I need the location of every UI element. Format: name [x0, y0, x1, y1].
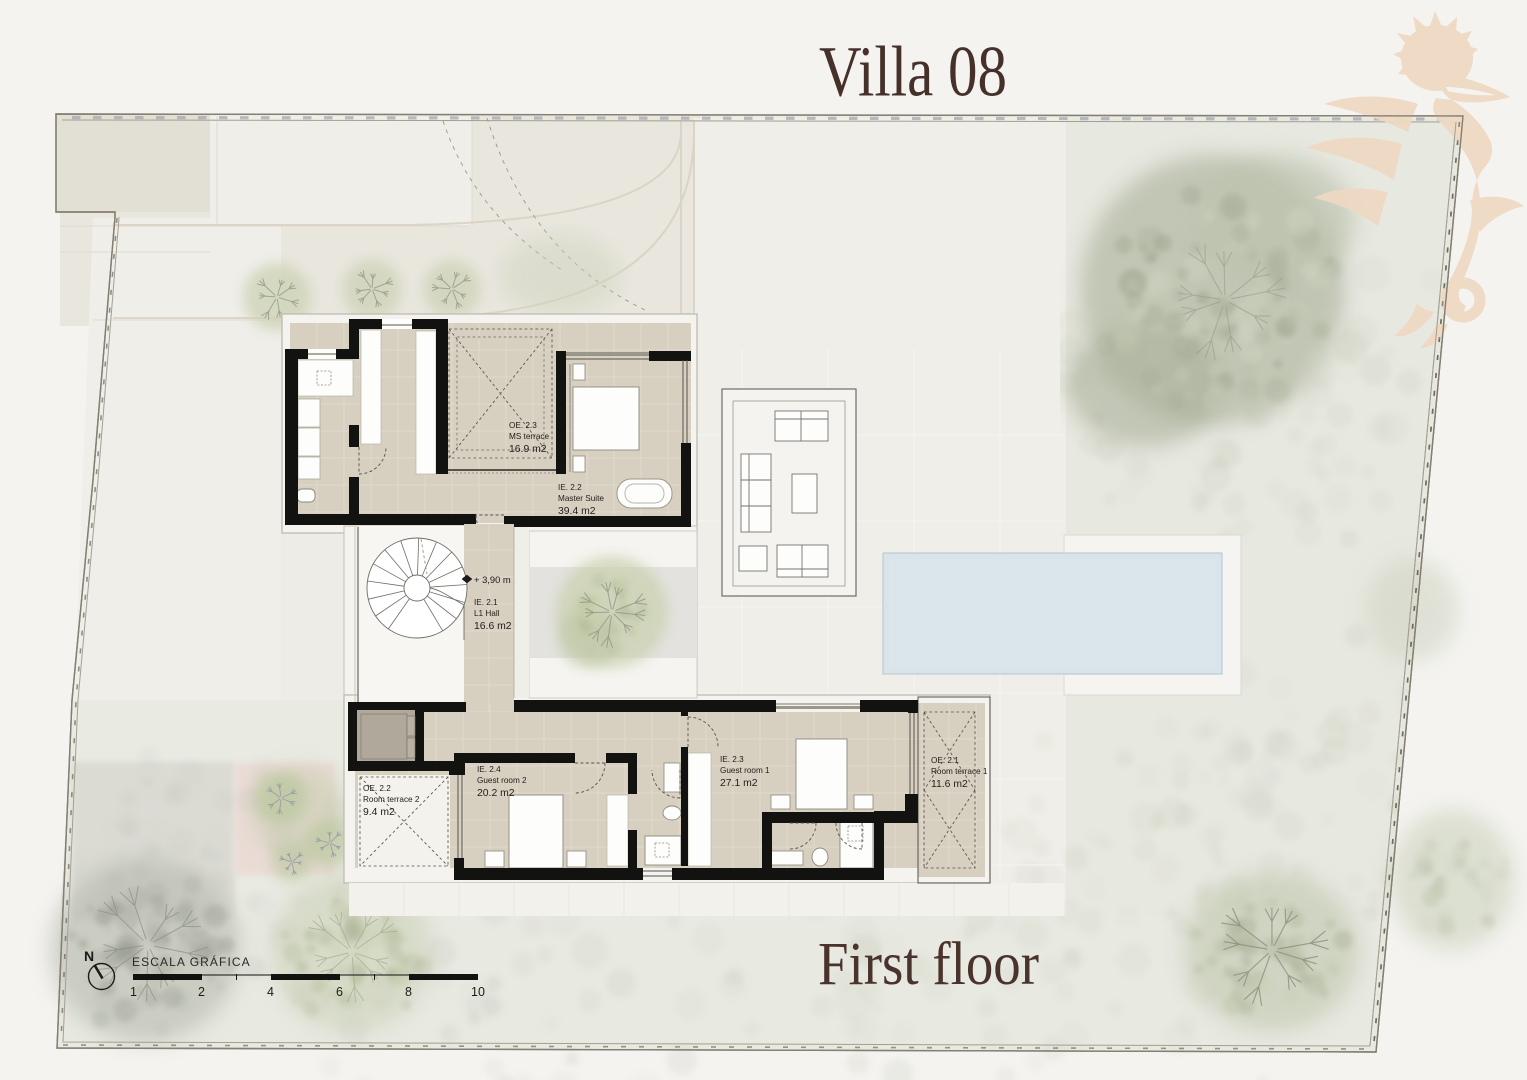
svg-text:First floor: First floor [818, 931, 1039, 998]
svg-text:16.9 m2: 16.9 m2 [509, 444, 547, 455]
svg-text:IE. 2.3: IE. 2.3 [720, 755, 744, 764]
svg-text:+ 3,90 m: + 3,90 m [474, 574, 511, 585]
svg-text:6: 6 [336, 985, 343, 999]
svg-text:16.6 m2: 16.6 m2 [474, 621, 512, 632]
svg-text:39.4 m2: 39.4 m2 [558, 506, 596, 517]
svg-text:OE. 2.1: OE. 2.1 [931, 756, 959, 765]
svg-text:ESCALA GRÁFICA: ESCALA GRÁFICA [132, 954, 251, 969]
svg-text:8: 8 [405, 985, 412, 999]
svg-text:IE. 2.4: IE. 2.4 [477, 765, 501, 774]
svg-text:Room terrace 2: Room terrace 2 [363, 795, 420, 804]
svg-text:11.6 m2: 11.6 m2 [931, 779, 968, 790]
svg-text:4: 4 [267, 985, 274, 999]
svg-text:N: N [84, 948, 94, 964]
svg-text:OE. 2.2: OE. 2.2 [363, 784, 391, 793]
svg-text:IE. 2.1: IE. 2.1 [474, 598, 498, 607]
svg-text:IE. 2.2: IE. 2.2 [558, 483, 582, 492]
svg-text:MS terrace: MS terrace [509, 432, 549, 441]
svg-text:Master Suite: Master Suite [558, 494, 604, 503]
svg-text:Guest room 1: Guest room 1 [720, 766, 770, 775]
svg-text:Villa 08: Villa 08 [819, 32, 1007, 112]
svg-text:Guest room 2: Guest room 2 [477, 776, 527, 785]
svg-text:20.2 m2: 20.2 m2 [477, 788, 515, 799]
svg-text:10: 10 [471, 985, 485, 999]
svg-text:27.1 m2: 27.1 m2 [720, 778, 758, 789]
svg-text:9.4 m2: 9.4 m2 [363, 807, 395, 818]
svg-text:OE. 2.3: OE. 2.3 [509, 421, 537, 430]
svg-text:1: 1 [130, 985, 137, 999]
svg-text:Room terrace 1: Room terrace 1 [931, 767, 988, 776]
svg-text:L1 Hall: L1 Hall [474, 609, 500, 618]
svg-text:2: 2 [198, 985, 205, 999]
